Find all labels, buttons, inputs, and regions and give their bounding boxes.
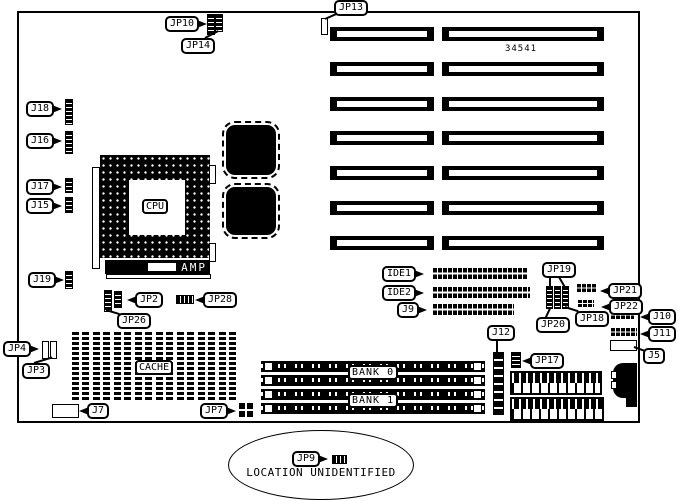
- isa-slot: [330, 62, 434, 76]
- label-jp14: JP14: [181, 38, 215, 54]
- power-connector: [510, 371, 602, 395]
- label-j5: J5: [643, 348, 665, 364]
- jp2-pins: [114, 291, 122, 308]
- label-jp4: JP4: [3, 341, 31, 357]
- j12-header: [493, 352, 504, 415]
- socket-side-connector: [92, 167, 100, 269]
- isa-slot: [442, 97, 604, 111]
- jp19-pins: [546, 286, 553, 309]
- label-jp17: JP17: [530, 353, 564, 369]
- label-jp28: JP28: [203, 292, 237, 308]
- j5-connector: [610, 340, 637, 351]
- jp19-pins: [554, 286, 561, 309]
- isa-slot: [330, 97, 434, 111]
- label-j15: J15: [26, 198, 54, 214]
- label-jp19: JP19: [542, 262, 576, 278]
- note-text: LOCATION UNIDENTIFIED: [240, 468, 402, 478]
- socket-notch: [209, 243, 216, 262]
- j11-pins: [611, 328, 637, 336]
- jp10-pins: [215, 14, 223, 32]
- jp7-jumper: [239, 403, 253, 417]
- isa-slot: [442, 236, 604, 250]
- cache-chip: [198, 332, 215, 400]
- j7-connector: [52, 404, 79, 418]
- jp9-pins: [332, 455, 347, 464]
- amp-window: [148, 263, 176, 271]
- isa-slot: [442, 166, 604, 180]
- jp17-pins: [511, 352, 521, 368]
- isa-slot: [330, 131, 434, 145]
- isa-slot: [330, 166, 434, 180]
- power-connector: [510, 397, 604, 421]
- label-jp9: JP9: [292, 451, 320, 467]
- label-jp18: JP18: [575, 311, 609, 327]
- label-jp10: JP10: [165, 16, 199, 32]
- j16-pins: [65, 131, 73, 154]
- label-jp21: JP21: [608, 283, 642, 299]
- bank0-label: BANK 0: [348, 365, 398, 380]
- cache-chip: [114, 332, 131, 400]
- qfp-chip: [226, 187, 276, 235]
- label-j11: J11: [648, 326, 676, 342]
- isa-slot: [442, 27, 604, 41]
- jp22-pins: [578, 300, 594, 307]
- label-j17: J17: [26, 179, 54, 195]
- amp-chip: AMP: [105, 260, 210, 274]
- label-jp3: JP3: [22, 363, 50, 379]
- cache-chip: [93, 332, 110, 400]
- label-jp2: JP2: [135, 292, 163, 308]
- isa-slot: [442, 131, 604, 145]
- j9-header: [433, 304, 514, 315]
- label-jp22: JP22: [609, 299, 643, 315]
- amp-base: [106, 274, 211, 279]
- j19-pins: [65, 271, 73, 289]
- isa-slot: [442, 201, 604, 215]
- label-j9: J9: [397, 302, 419, 318]
- label-ide2: IDE2: [382, 285, 416, 301]
- socket-notch: [209, 165, 216, 184]
- jp13-connector: [321, 18, 328, 35]
- cache-chip: [177, 332, 194, 400]
- qfp-chip: [226, 125, 276, 175]
- j17-pins: [65, 178, 73, 193]
- ide2-header: [433, 287, 530, 298]
- label-j16: J16: [26, 133, 54, 149]
- amp-label: AMP: [181, 261, 207, 274]
- motherboard-diagram: 34541 CPU AMP CACHE BANK 0 BANK 1: [0, 0, 678, 501]
- label-jp7: JP7: [200, 403, 228, 419]
- label-jp20: JP20: [536, 317, 570, 333]
- label-ide1: IDE1: [382, 266, 416, 282]
- jp28-pins: [176, 295, 194, 304]
- label-j19: J19: [28, 272, 56, 288]
- keyboard-connector-notch: [611, 371, 617, 379]
- cache-label: CACHE: [135, 360, 173, 375]
- cache-chip: [72, 332, 89, 400]
- label-j7: J7: [87, 403, 109, 419]
- label-jp26: JP26: [117, 313, 151, 329]
- keyboard-connector-step: [626, 395, 637, 407]
- bank1-label: BANK 1: [348, 393, 398, 408]
- j18-pins: [65, 99, 73, 125]
- jp21-pins: [577, 284, 597, 292]
- jp4-connector: [42, 341, 49, 359]
- keyboard-connector-notch: [611, 381, 617, 389]
- isa-slot: [442, 62, 604, 76]
- ide1-header: [433, 268, 527, 279]
- isa-slot: [330, 236, 434, 250]
- j15-pins: [65, 197, 73, 213]
- label-j12: J12: [487, 325, 515, 341]
- isa-slot: [330, 27, 434, 41]
- label-j18: J18: [26, 101, 54, 117]
- isa-slot: [330, 201, 434, 215]
- part-number: 34541: [495, 44, 547, 54]
- cache-chip: [219, 332, 236, 400]
- label-jp13: JP13: [334, 0, 368, 16]
- cpu-label: CPU: [142, 199, 168, 214]
- note-ellipse: [228, 430, 414, 500]
- label-j10: J10: [648, 309, 676, 325]
